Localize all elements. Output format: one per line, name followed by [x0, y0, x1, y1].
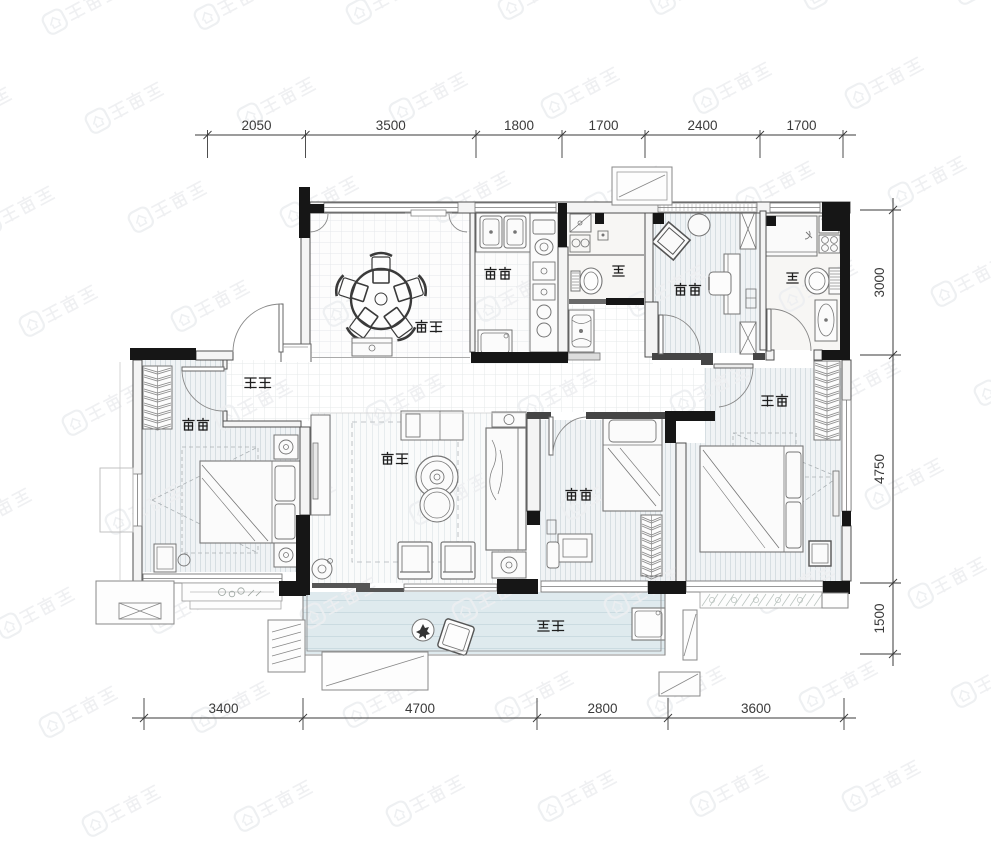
svg-text:2400: 2400	[687, 118, 717, 133]
svg-text:1700: 1700	[786, 118, 816, 133]
svg-text:3000: 3000	[872, 267, 887, 297]
svg-text:3400: 3400	[208, 701, 238, 716]
svg-text:1500: 1500	[872, 603, 887, 633]
svg-text:4750: 4750	[872, 454, 887, 484]
svg-text:1700: 1700	[588, 118, 618, 133]
svg-text:1800: 1800	[504, 118, 534, 133]
svg-text:2050: 2050	[241, 118, 271, 133]
svg-text:4700: 4700	[405, 701, 435, 716]
svg-text:3500: 3500	[376, 118, 406, 133]
svg-text:2800: 2800	[587, 701, 617, 716]
svg-text:3600: 3600	[741, 701, 771, 716]
